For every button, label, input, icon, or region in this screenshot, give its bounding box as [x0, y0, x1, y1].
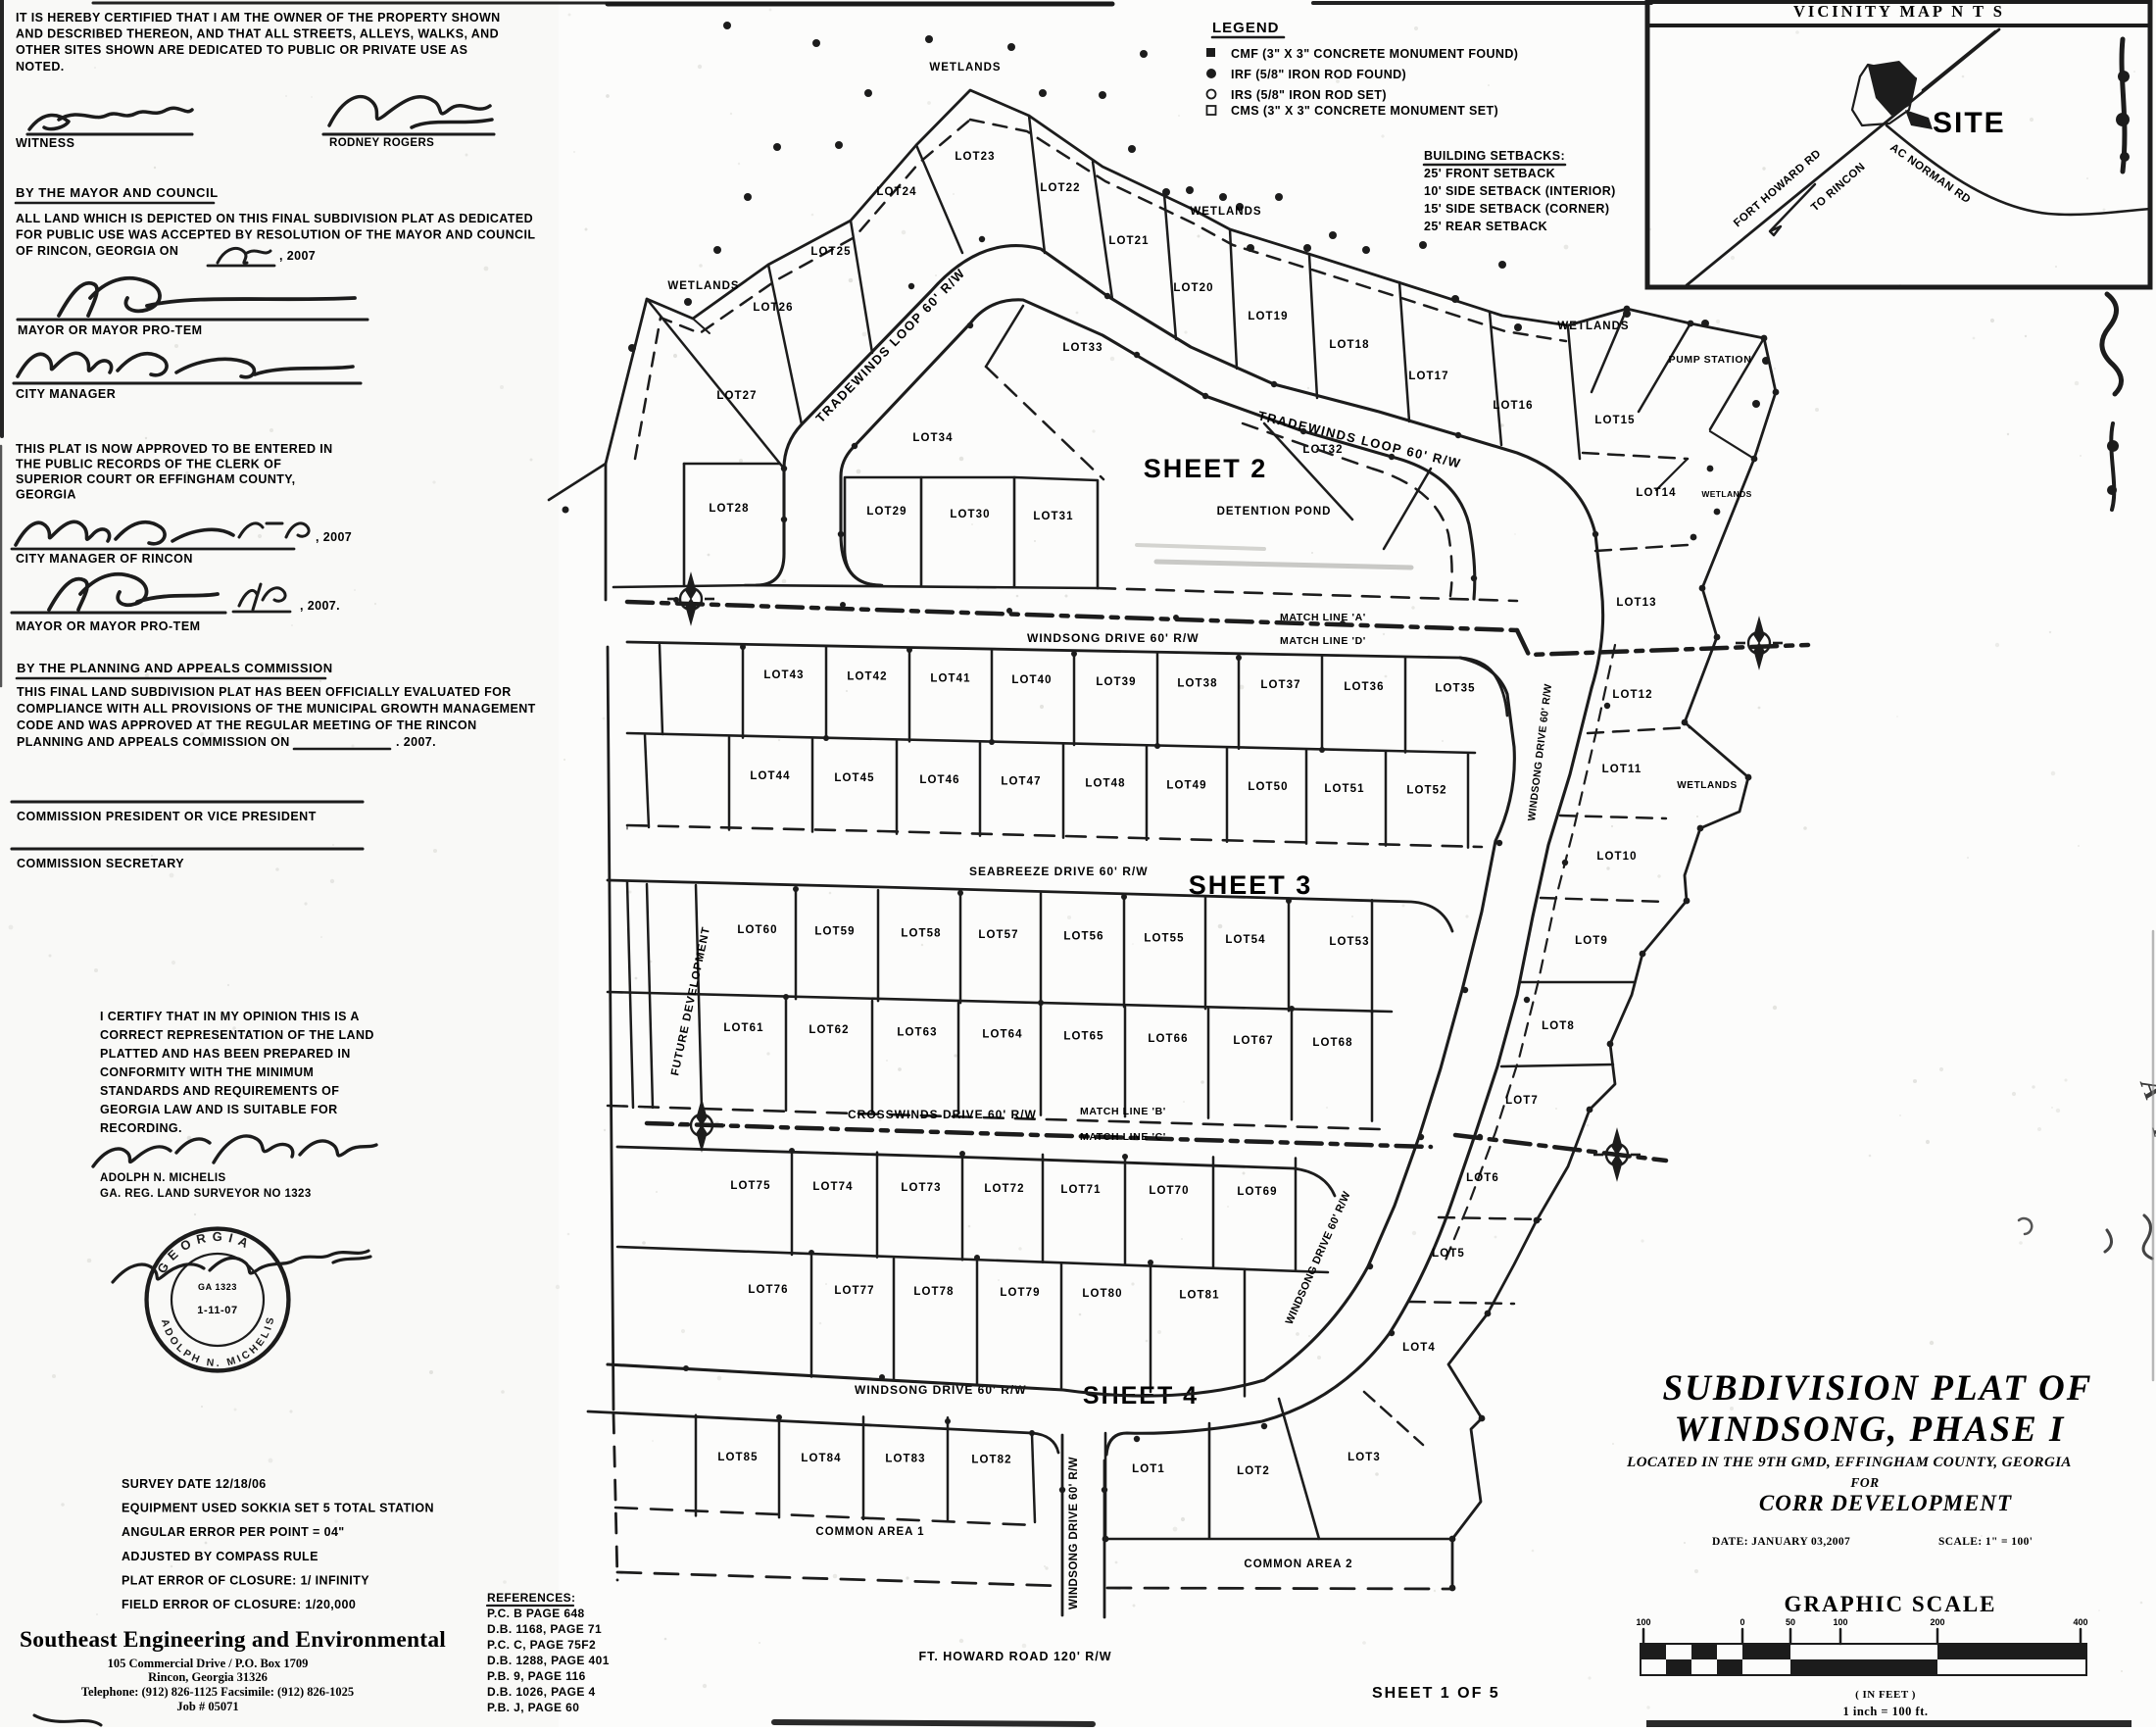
svg-text:THE PUBLIC RECORDS OF THE CLER: THE PUBLIC RECORDS OF THE CLERK OF [16, 458, 281, 471]
svg-text:Job # 05071: Job # 05071 [176, 1700, 238, 1713]
svg-text:GEORGIA LAW AND IS SUITABLE FO: GEORGIA LAW AND IS SUITABLE FOR [100, 1103, 338, 1116]
svg-text:PLANNING AND APPEALS COMMISSIO: PLANNING AND APPEALS COMMISSION ON [17, 735, 290, 749]
svg-text:NOTED.: NOTED. [16, 60, 65, 74]
svg-text:OF RINCON, GEORGIA ON: OF RINCON, GEORGIA ON [16, 244, 178, 258]
svg-text:COMMON AREA 2: COMMON AREA 2 [1244, 1559, 1352, 1570]
svg-text:LOT54: LOT54 [1225, 934, 1265, 946]
svg-text:SHEET 3: SHEET 3 [1189, 870, 1313, 900]
svg-text:LOT76: LOT76 [748, 1284, 788, 1296]
svg-text:LOT10: LOT10 [1596, 851, 1637, 863]
svg-text:IT IS HEREBY CERTIFIED THAT I: IT IS HEREBY CERTIFIED THAT I AM THE OWN… [16, 11, 501, 25]
svg-text:LOT51: LOT51 [1324, 783, 1364, 795]
svg-text:LOT72: LOT72 [984, 1183, 1024, 1195]
svg-text:ADOLPH N. MICHELIS: ADOLPH N. MICHELIS [100, 1172, 226, 1184]
svg-text:LOT8: LOT8 [1542, 1020, 1575, 1032]
svg-text:LOT65: LOT65 [1063, 1031, 1103, 1043]
svg-text:LOT57: LOT57 [978, 929, 1018, 941]
svg-text:15' SIDE SETBACK (CORNER): 15' SIDE SETBACK (CORNER) [1424, 202, 1609, 216]
svg-text:GRAPHIC SCALE: GRAPHIC SCALE [1784, 1592, 1996, 1616]
svg-text:LOT34: LOT34 [912, 432, 953, 444]
svg-text:PLATTED AND HAS BEEN PREPARED: PLATTED AND HAS BEEN PREPARED IN [100, 1047, 351, 1061]
svg-text:PLAT ERROR OF CLOSURE: 1/ INF: PLAT ERROR OF CLOSURE: 1/ INFINITY [122, 1573, 369, 1587]
svg-text:COMMISSION PRESIDENT OR VICE P: COMMISSION PRESIDENT OR VICE PRESIDENT [17, 810, 317, 823]
svg-text:P.C. B PAGE 648: P.C. B PAGE 648 [487, 1607, 585, 1620]
svg-text:LOT75: LOT75 [730, 1180, 770, 1192]
svg-text:LOT41: LOT41 [930, 672, 970, 684]
svg-text:100: 100 [1833, 1617, 1847, 1627]
svg-text:0: 0 [1739, 1617, 1744, 1627]
svg-text:LOT85: LOT85 [717, 1452, 758, 1463]
svg-text:LOT35: LOT35 [1435, 683, 1475, 695]
svg-text:LOT70: LOT70 [1149, 1185, 1189, 1197]
svg-text:LOT20: LOT20 [1173, 282, 1213, 294]
svg-text:LOT49: LOT49 [1166, 779, 1206, 791]
svg-text:Southeast Engineering and Envi: Southeast Engineering and Environmental [20, 1627, 446, 1653]
svg-text:SUPERIOR COURT OR EFFINGHAM CO: SUPERIOR COURT OR EFFINGHAM COUNTY, [16, 472, 296, 486]
svg-text:FIELD ERROR OF CLOSURE: 1/20,0: FIELD ERROR OF CLOSURE: 1/20,000 [122, 1598, 356, 1611]
svg-text:P.B. J, PAGE 60: P.B. J, PAGE 60 [487, 1701, 579, 1714]
svg-text:WINDSONG, PHASE I: WINDSONG, PHASE I [1675, 1410, 2066, 1450]
svg-text:MATCH LINE 'C': MATCH LINE 'C' [1080, 1131, 1166, 1143]
svg-text:. 2007.: . 2007. [396, 735, 436, 749]
svg-text:DETENTION POND: DETENTION POND [1217, 506, 1332, 518]
svg-text:LOT2: LOT2 [1237, 1465, 1270, 1477]
svg-text:CONFORMITY WITH THE MINIMUM: CONFORMITY WITH THE MINIMUM [100, 1065, 314, 1079]
svg-text:LOT47: LOT47 [1001, 776, 1041, 788]
svg-text:LOT60: LOT60 [737, 924, 777, 936]
svg-text:MATCH LINE 'A': MATCH LINE 'A' [1280, 612, 1366, 623]
svg-text:SUBDIVISION PLAT OF: SUBDIVISION PLAT OF [1663, 1368, 2093, 1409]
svg-text:AND DESCRIBED THEREON, AND THA: AND DESCRIBED THEREON, AND THAT ALL STRE… [16, 27, 499, 41]
svg-text:LOT30: LOT30 [950, 509, 990, 520]
svg-text:LOT62: LOT62 [808, 1024, 849, 1036]
svg-text:CITY MANAGER: CITY MANAGER [16, 387, 116, 401]
svg-text:FOR PUBLIC USE WAS ACCEPTED BY: FOR PUBLIC USE WAS ACCEPTED BY RESOLUTIO… [16, 228, 535, 242]
svg-text:WETLANDS: WETLANDS [1701, 489, 1751, 499]
svg-text:1-11-07: 1-11-07 [197, 1305, 238, 1316]
svg-text:105 Commercial Drive / P.O. Bo: 105 Commercial Drive / P.O. Box 1709 [108, 1657, 309, 1670]
svg-text:LOT6: LOT6 [1466, 1172, 1499, 1184]
svg-text:LOT14: LOT14 [1636, 487, 1676, 499]
svg-text:FOR: FOR [1849, 1475, 1879, 1490]
svg-text:CITY MANAGER OF RINCON: CITY MANAGER OF RINCON [16, 552, 193, 566]
svg-text:LOT55: LOT55 [1144, 932, 1184, 944]
svg-text:25' FRONT SETBACK: 25' FRONT SETBACK [1424, 167, 1555, 180]
svg-text:LOT21: LOT21 [1108, 235, 1149, 247]
svg-text:LOT56: LOT56 [1063, 931, 1103, 943]
svg-text:BY THE PLANNING AND APPEALS CO: BY THE PLANNING AND APPEALS COMMISSION [17, 661, 333, 675]
svg-text:SEABREEZE DRIVE 60' R/W: SEABREEZE DRIVE 60' R/W [969, 865, 1149, 878]
svg-text:ADJUSTED BY COMPASS RULE: ADJUSTED BY COMPASS RULE [122, 1550, 318, 1563]
svg-text:LOT32: LOT32 [1302, 444, 1343, 456]
svg-text:LOT9: LOT9 [1575, 935, 1608, 947]
svg-text:LOT64: LOT64 [982, 1029, 1022, 1041]
svg-text:LOT1: LOT1 [1132, 1463, 1165, 1475]
svg-text:( IN FEET ): ( IN FEET ) [1855, 1689, 1916, 1701]
svg-text:GEORGIA: GEORGIA [16, 488, 76, 502]
svg-text:, 2007: , 2007 [279, 249, 316, 263]
svg-text:LOT25: LOT25 [810, 246, 851, 258]
svg-text:LOT40: LOT40 [1011, 674, 1052, 686]
svg-text:RODNEY ROGERS: RODNEY ROGERS [329, 137, 434, 149]
svg-text:LOT4: LOT4 [1402, 1342, 1436, 1354]
svg-text:LOT12: LOT12 [1612, 689, 1652, 701]
svg-text:MAYOR OR MAYOR PRO-TEM: MAYOR OR MAYOR PRO-TEM [16, 619, 201, 633]
svg-text:D.B. 1026, PAGE 4: D.B. 1026, PAGE 4 [487, 1685, 596, 1699]
svg-text:LOT39: LOT39 [1096, 676, 1136, 688]
svg-text:LOT82: LOT82 [971, 1455, 1011, 1466]
svg-text:LOT5: LOT5 [1432, 1248, 1465, 1260]
svg-text:LOT74: LOT74 [812, 1181, 853, 1193]
svg-text:50: 50 [1786, 1617, 1795, 1627]
svg-text:LOT44: LOT44 [750, 770, 790, 782]
svg-text:MAYOR OR MAYOR PRO-TEM: MAYOR OR MAYOR PRO-TEM [18, 323, 203, 337]
svg-text:100: 100 [1636, 1617, 1650, 1627]
svg-text:LOT31: LOT31 [1033, 511, 1073, 522]
svg-text:LOT52: LOT52 [1406, 785, 1446, 797]
svg-text:LOT16: LOT16 [1493, 400, 1533, 412]
svg-text:FT. HOWARD ROAD 120' R/W: FT. HOWARD ROAD 120' R/W [918, 1650, 1111, 1663]
svg-text:COMPLIANCE WITH ALL PROVISIONS: COMPLIANCE WITH ALL PROVISIONS OF THE MU… [17, 702, 536, 716]
svg-text:LOT66: LOT66 [1148, 1033, 1188, 1045]
svg-text:LOT27: LOT27 [716, 390, 757, 402]
svg-text:LOT23: LOT23 [955, 151, 995, 163]
svg-text:WETLANDS: WETLANDS [929, 62, 1001, 74]
svg-text:COMMON AREA 1: COMMON AREA 1 [815, 1526, 924, 1538]
svg-text:PUMP STATION: PUMP STATION [1669, 354, 1752, 366]
svg-text:LOT73: LOT73 [901, 1182, 941, 1194]
svg-text:LOCATED IN THE 9TH GMD, EFFING: LOCATED IN THE 9TH GMD, EFFINGHAM COUNTY… [1626, 1455, 2072, 1470]
svg-text:SHEET 2: SHEET 2 [1144, 454, 1268, 483]
svg-text:25' REAR SETBACK: 25' REAR SETBACK [1424, 220, 1547, 233]
svg-text:WETLANDS: WETLANDS [1677, 780, 1737, 791]
svg-text:LOT43: LOT43 [763, 669, 804, 681]
svg-text:LOT38: LOT38 [1177, 677, 1217, 689]
svg-text:LOT3: LOT3 [1347, 1452, 1381, 1463]
svg-text:CODE AND WAS APPROVED AT THE R: CODE AND WAS APPROVED AT THE REGULAR MEE… [17, 718, 477, 732]
svg-text:LOT28: LOT28 [709, 503, 749, 515]
svg-text:CROSSWINDS DRIVE 60' R/W: CROSSWINDS DRIVE 60' R/W [848, 1108, 1037, 1121]
svg-text:LOT68: LOT68 [1312, 1037, 1352, 1049]
svg-text:P.C. C, PAGE 75F2: P.C. C, PAGE 75F2 [487, 1638, 596, 1652]
svg-text:SCALE: 1" = 100': SCALE: 1" = 100' [1938, 1536, 2033, 1548]
svg-text:MATCH LINE 'B': MATCH LINE 'B' [1080, 1106, 1166, 1117]
svg-text:LOT79: LOT79 [1000, 1287, 1040, 1299]
svg-text:D.B. 1168, PAGE 71: D.B. 1168, PAGE 71 [487, 1622, 602, 1636]
svg-text:, 2007.: , 2007. [300, 599, 340, 613]
svg-text:IRS (5/8" IRON ROD SET): IRS (5/8" IRON ROD SET) [1231, 88, 1387, 102]
svg-text:LOT48: LOT48 [1085, 778, 1125, 790]
svg-text:LOT81: LOT81 [1179, 1289, 1219, 1301]
svg-text:LOT37: LOT37 [1260, 679, 1300, 691]
svg-text:LOT29: LOT29 [866, 506, 906, 518]
svg-text:ALL LAND WHICH IS DEPICTED ON: ALL LAND WHICH IS DEPICTED ON THIS FINAL… [16, 212, 533, 225]
svg-text:LOT19: LOT19 [1248, 311, 1288, 322]
svg-text:CORRECT REPRESENTATION OF THE: CORRECT REPRESENTATION OF THE LAND [100, 1028, 374, 1042]
svg-text:VICINITY MAP N T S: VICINITY MAP N T S [1793, 2, 2005, 21]
svg-text:P.B. 9, PAGE 116: P.B. 9, PAGE 116 [487, 1669, 586, 1683]
svg-text:LOT67: LOT67 [1233, 1035, 1273, 1047]
svg-text:OTHER SITES SHOWN ARE DEDICATE: OTHER SITES SHOWN ARE DEDICATED TO PUBLI… [16, 43, 467, 57]
svg-text:1 inch = 100 ft.: 1 inch = 100 ft. [1843, 1705, 1929, 1718]
svg-text:GA. REG. LAND SURVEYOR NO 132: GA. REG. LAND SURVEYOR NO 1323 [100, 1188, 312, 1200]
svg-text:LOT17: LOT17 [1408, 371, 1448, 382]
svg-text:LOT53: LOT53 [1329, 936, 1369, 948]
svg-text:RECORDING.: RECORDING. [100, 1121, 182, 1135]
svg-text:, 2007: , 2007 [316, 530, 352, 544]
svg-text:Rincon, Georgia 31326: Rincon, Georgia 31326 [148, 1670, 268, 1684]
svg-text:LOT33: LOT33 [1062, 342, 1102, 354]
svg-text:LEGEND: LEGEND [1212, 20, 1280, 36]
svg-text:WETLANDS: WETLANDS [667, 280, 739, 292]
svg-text:IRF (5/8" IRON ROD FOUND): IRF (5/8" IRON ROD FOUND) [1231, 68, 1406, 81]
svg-text:STANDARDS AND REQUIREMENTS OF: STANDARDS AND REQUIREMENTS OF [100, 1084, 339, 1098]
svg-text:COMMISSION SECRETARY: COMMISSION SECRETARY [17, 857, 184, 870]
svg-text:THIS PLAT IS NOW APPROVED TO B: THIS PLAT IS NOW APPROVED TO BE ENTERED … [16, 442, 333, 456]
svg-text:LOT46: LOT46 [919, 774, 959, 786]
svg-text:WINDSONG DRIVE 60' R/W: WINDSONG DRIVE 60' R/W [1068, 1457, 1080, 1609]
svg-text:I CERTIFY THAT IN MY OPINION T: I CERTIFY THAT IN MY OPINION THIS IS A [100, 1010, 360, 1023]
svg-text:REFERENCES:: REFERENCES: [487, 1591, 575, 1605]
svg-text:GA 1323: GA 1323 [198, 1282, 237, 1292]
svg-text:D.B. 1288, PAGE 401: D.B. 1288, PAGE 401 [487, 1654, 610, 1667]
svg-text:LOT71: LOT71 [1060, 1184, 1101, 1196]
svg-text:LOT26: LOT26 [753, 302, 793, 314]
svg-text:LOT83: LOT83 [885, 1454, 925, 1465]
svg-text:LOT11: LOT11 [1602, 764, 1642, 775]
svg-text:LOT77: LOT77 [834, 1285, 874, 1297]
svg-text:LOT18: LOT18 [1329, 339, 1369, 351]
svg-text:DATE: JANUARY 03,2007: DATE: JANUARY 03,2007 [1712, 1536, 1850, 1548]
svg-text:SHEET 1 OF 5: SHEET 1 OF 5 [1372, 1685, 1500, 1702]
svg-text:WITNESS: WITNESS [16, 136, 74, 150]
svg-text:CORR DEVELOPMENT: CORR DEVELOPMENT [1759, 1491, 2012, 1515]
svg-text:LOT63: LOT63 [897, 1026, 937, 1038]
svg-text:SURVEY DATE 12/18/06: SURVEY DATE 12/18/06 [122, 1477, 267, 1491]
svg-text:LOT78: LOT78 [913, 1286, 954, 1298]
svg-text:EQUIPMENT USED SOKKIA SET 5 T: EQUIPMENT USED SOKKIA SET 5 TOTAL STATIO… [122, 1502, 434, 1515]
svg-text:LOT50: LOT50 [1248, 781, 1288, 793]
svg-text:WETLANDS: WETLANDS [1190, 206, 1261, 218]
svg-text:LOT42: LOT42 [847, 671, 887, 683]
svg-text:LOT7: LOT7 [1505, 1095, 1539, 1107]
svg-text:LOT69: LOT69 [1237, 1186, 1277, 1198]
svg-text:Telephone: (912) 826-1125: Telephone: (912) 826-1125 Facsimile: (91… [81, 1685, 354, 1699]
svg-text:LOT61: LOT61 [723, 1022, 763, 1034]
svg-text:LOT80: LOT80 [1082, 1288, 1122, 1300]
svg-text:WINDSONG DRIVE 60' R/W: WINDSONG DRIVE 60' R/W [1027, 631, 1200, 645]
svg-text:LOT15: LOT15 [1594, 415, 1635, 426]
svg-text:10' SIDE SETBACK (INTERIOR): 10' SIDE SETBACK (INTERIOR) [1424, 184, 1616, 198]
svg-text:LOT13: LOT13 [1616, 597, 1656, 609]
svg-text:LOT84: LOT84 [801, 1453, 841, 1464]
svg-text:LOT45: LOT45 [834, 772, 874, 784]
svg-text:LOT24: LOT24 [876, 186, 916, 198]
svg-text:LOT36: LOT36 [1344, 681, 1384, 693]
svg-text:200: 200 [1930, 1617, 1944, 1627]
svg-text:SITE: SITE [1933, 107, 2006, 139]
svg-text:ANGULAR ERROR PER POINT = 04": ANGULAR ERROR PER POINT = 04" [122, 1525, 345, 1539]
svg-text:BY THE MAYOR AND COUNCIL: BY THE MAYOR AND COUNCIL [16, 185, 219, 200]
svg-text:LOT58: LOT58 [901, 927, 941, 939]
svg-text:CMF (3" X 3" CONCRETE MONUMENT: CMF (3" X 3" CONCRETE MONUMENT FOUND) [1231, 47, 1518, 61]
svg-text:CMS (3" X 3" CONCRETE MONUMENT: CMS (3" X 3" CONCRETE MONUMENT SET) [1231, 104, 1498, 118]
svg-text:400: 400 [2073, 1617, 2087, 1627]
svg-text:LOT22: LOT22 [1040, 182, 1080, 194]
svg-text:THIS FINAL LAND SUBDIVISION PL: THIS FINAL LAND SUBDIVISION PLAT HAS BEE… [17, 685, 512, 699]
svg-text:LOT59: LOT59 [814, 926, 855, 938]
svg-text:MATCH LINE 'D': MATCH LINE 'D' [1280, 635, 1366, 647]
svg-text:BUILDING SETBACKS:: BUILDING SETBACKS: [1424, 149, 1565, 163]
